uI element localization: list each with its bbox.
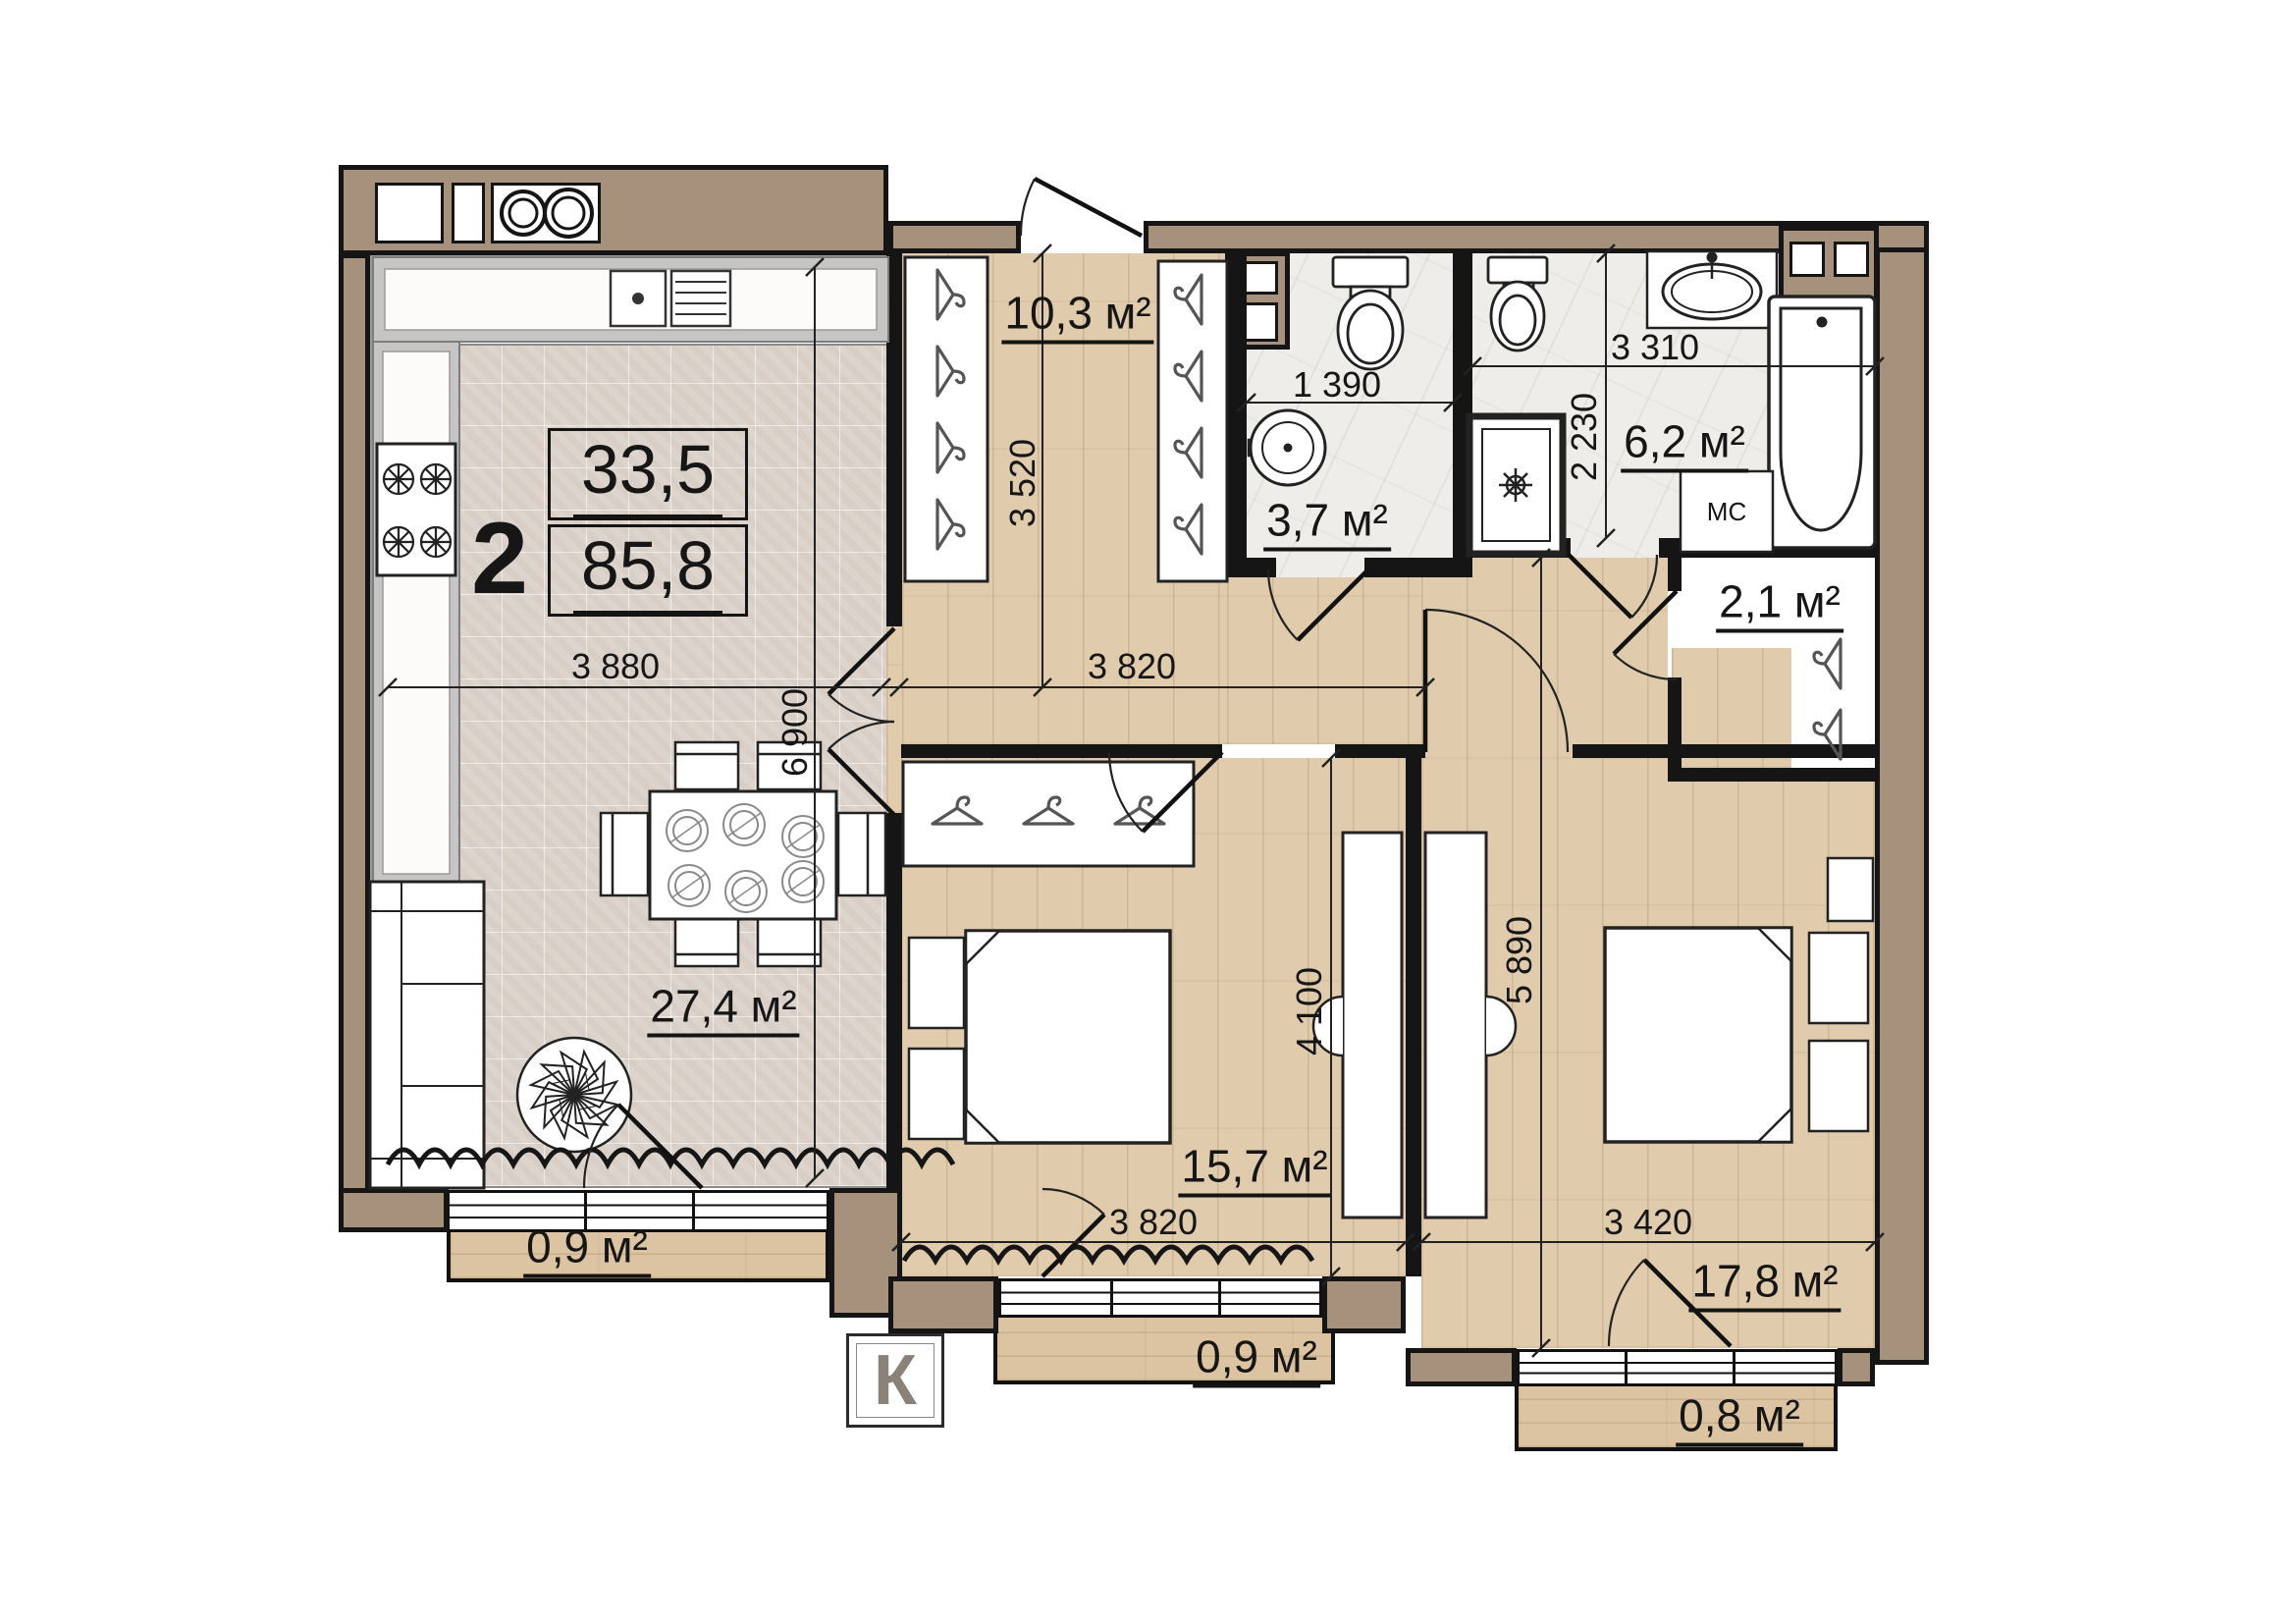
wall [1406,1348,1517,1386]
room-label-hallway: 10,3 м² [1001,291,1153,345]
vent-shaft [491,183,601,244]
room-label-balcony-middle: 0,9 м² [1193,1334,1320,1388]
dim-hall-height: 3 520 [1005,439,1041,527]
wall [1472,538,1571,558]
ac-unit-label: К [874,1340,917,1421]
unit-living-area: 33,5 [573,430,722,519]
dim-bedroom1-height: 4 100 [1292,967,1327,1056]
dim-bedroom2-width: 3 420 [1604,1205,1692,1240]
dim-bedroom1-width: 3 820 [1109,1205,1198,1240]
floor-passage [886,626,902,813]
wall [886,813,902,1188]
wall [901,744,1222,758]
wall [1659,538,1877,558]
floor-bedroom-1 [901,758,1406,1276]
wall [888,221,1021,253]
vent-shaft [375,183,444,244]
room-label-bedroom-2: 17,8 м² [1688,1259,1841,1313]
wall [1322,1276,1406,1333]
dim-bedroom2-height: 5 890 [1502,916,1537,1004]
dim-bathroom-small-width: 1 390 [1293,367,1381,403]
wall [1453,253,1472,558]
room-label-balcony-left: 0,9 м² [523,1224,651,1278]
room-label-bedroom-1: 15,7 м² [1178,1144,1330,1198]
wall [1875,247,1929,1365]
ac-unit-box: К [846,1333,944,1428]
washing-machine-label: МС [1707,499,1746,524]
room-label-bathroom-large: 6,2 м² [1621,419,1748,473]
wall [1573,744,1875,758]
unit-total-area: 85,8 [573,526,722,616]
wall [1406,758,1421,1276]
room-label-closet: 2,1 м² [1716,579,1843,633]
wall [1668,558,1682,591]
wall [886,253,902,626]
room-label-bathroom-small: 3,7 м² [1263,498,1391,552]
window-bedroom-1 [998,1278,1322,1318]
floor-plan: К [0,0,2296,1624]
dim-hall-width: 3 820 [1088,649,1176,684]
vent-shaft [452,183,485,244]
unit-living-area-box: 33,5 [548,428,748,520]
wall [1668,677,1682,768]
dim-living-height: 6 900 [777,688,813,777]
vent-shaft [1834,242,1869,277]
wall [888,1276,998,1333]
wall [1668,768,1876,782]
wall [339,253,370,1232]
dim-bathroom-large-height: 2 230 [1567,393,1602,481]
vent-shaft [1789,242,1825,277]
unit-total-area-box: 85,8 [548,524,748,617]
room-label-kitchen-living: 27,4 м² [647,984,799,1038]
dim-living-width: 3 880 [571,649,660,684]
unit-rooms-count: 2 [471,508,528,610]
wall [339,1188,449,1232]
wall [1225,558,1276,577]
wall [1838,1348,1875,1386]
dim-bathroom-large-width: 3 310 [1611,330,1699,365]
window-bedroom-2 [1517,1349,1838,1386]
wall [1225,253,1247,577]
room-label-balcony-right: 0,8 м² [1676,1393,1803,1447]
wall [1364,558,1472,577]
wall [1335,744,1425,758]
